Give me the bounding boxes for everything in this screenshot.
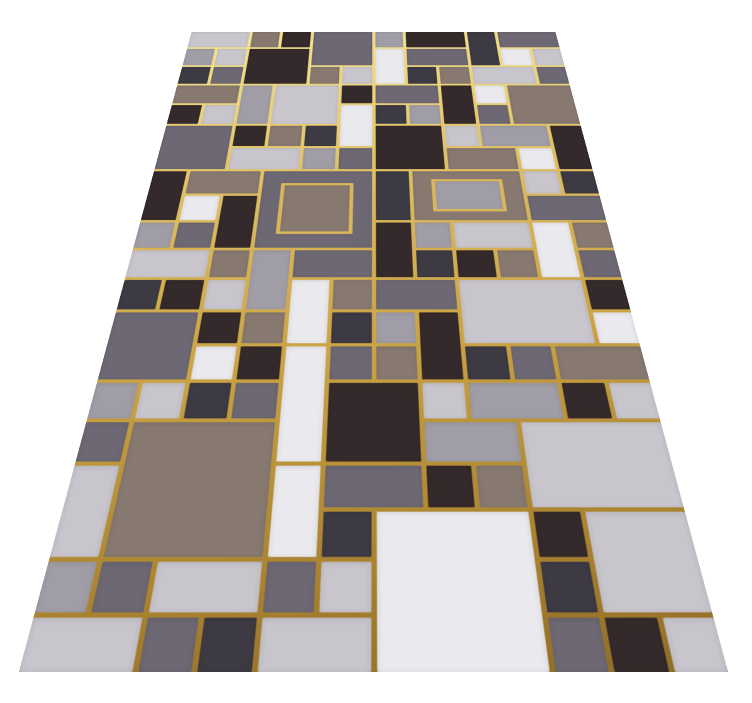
rug-block [98, 312, 198, 379]
rug-block [232, 383, 279, 419]
rug-block [104, 423, 274, 558]
rug-block [138, 617, 199, 671]
rug-block [267, 465, 320, 557]
rug-block [250, 32, 280, 47]
rug-block [236, 85, 273, 124]
rug-block [125, 250, 209, 277]
rug-block [76, 423, 130, 462]
rug-block [469, 383, 564, 419]
rug-block [555, 346, 649, 379]
rug-block [375, 126, 445, 169]
rug-block [203, 280, 246, 309]
rug-block [242, 312, 285, 343]
rug-block [340, 105, 372, 146]
rug-block [214, 196, 258, 248]
rug-block [578, 250, 622, 277]
rug-block [186, 171, 261, 193]
rug-block [201, 105, 236, 124]
rug-block [155, 126, 233, 169]
rug-block [332, 280, 371, 309]
rug-block [178, 67, 212, 84]
rug-block [497, 32, 559, 47]
rug-block [257, 617, 370, 671]
rug-block [477, 105, 511, 124]
rug-block [415, 222, 453, 247]
rug-block [521, 423, 684, 508]
rug-block [174, 222, 215, 247]
rug-block [562, 383, 612, 419]
rug-block [141, 171, 187, 220]
rug-block [445, 126, 479, 146]
rug-block [456, 250, 496, 277]
rug-block-inset [276, 183, 353, 233]
rug-block [500, 49, 532, 65]
rug-block [519, 148, 556, 169]
rug-block [409, 105, 441, 124]
rug-block [167, 105, 203, 124]
rug-block [92, 562, 152, 612]
rug-block [523, 171, 561, 193]
rug-block [187, 32, 249, 47]
rug-block [407, 67, 437, 84]
rug-block [263, 562, 317, 612]
rug-block [376, 512, 549, 672]
rug-block [215, 49, 247, 65]
rug-block [472, 67, 537, 84]
rug-block [376, 280, 458, 309]
rug-block [211, 67, 244, 84]
rug-block [585, 512, 712, 612]
rug-block [424, 423, 521, 462]
rug-block [309, 67, 339, 84]
rug-block [416, 250, 455, 277]
rug-block [339, 148, 372, 169]
rug-block [180, 196, 220, 220]
rug-block [474, 85, 507, 103]
rug-block [592, 312, 639, 343]
rug-block [375, 105, 406, 124]
rug-block [560, 171, 599, 193]
rug-block [412, 171, 528, 220]
rug-block [341, 85, 372, 103]
rug-block [548, 617, 609, 671]
rug-block [329, 346, 371, 379]
rug-block [536, 67, 570, 84]
rug-block [183, 383, 231, 419]
rug-block [465, 346, 510, 379]
rug-block [302, 148, 336, 169]
rug-block [662, 617, 728, 671]
rug-block [268, 126, 302, 146]
rug-block [198, 617, 257, 671]
rug-block [510, 346, 556, 379]
rug-block [19, 617, 142, 671]
rug-block [342, 67, 372, 84]
rug-block [311, 32, 372, 65]
rug-product-image [0, 0, 752, 703]
rug-block [197, 312, 242, 343]
rug-block [571, 222, 613, 247]
rug-block [605, 617, 669, 671]
rug-block [149, 562, 262, 612]
rug-block [532, 49, 565, 65]
rug-block [406, 32, 466, 47]
rug-block [232, 126, 267, 146]
rug-block [439, 67, 470, 84]
rug-block [507, 85, 580, 124]
rug-block [540, 562, 598, 612]
rug-block [276, 346, 327, 461]
rug-block [406, 49, 468, 65]
rug-block [419, 312, 464, 379]
rug-block [172, 85, 240, 103]
rug-block [271, 85, 339, 124]
rug-block [533, 512, 588, 558]
rug-canvas [19, 32, 728, 672]
rug-block [292, 250, 371, 277]
rug-block [608, 383, 660, 419]
rug-block [133, 222, 175, 247]
rug-block [480, 126, 551, 146]
rug-block [441, 85, 476, 124]
rug-block [497, 250, 538, 277]
rug-block [190, 346, 236, 379]
rug-block-inset [431, 179, 507, 211]
rug-block [324, 465, 423, 507]
rug-block [281, 32, 311, 47]
rug-block [326, 383, 421, 461]
rug-block [467, 32, 500, 65]
rug-block [254, 171, 371, 247]
rug-block [319, 562, 370, 612]
rug-block [331, 312, 371, 343]
rug-block [527, 196, 606, 220]
rug-block [447, 148, 519, 169]
rug-block [476, 465, 527, 507]
rug-block [376, 346, 418, 379]
rug-block [286, 280, 329, 343]
rug-block [35, 562, 98, 612]
rug-block [375, 85, 439, 103]
rug-block [375, 32, 403, 47]
rug-block [585, 280, 630, 309]
rug-block [160, 280, 204, 309]
rug-block [422, 383, 467, 419]
rug-block [376, 312, 416, 343]
rug-block [459, 280, 594, 343]
rug-block [375, 171, 410, 220]
rug-block [135, 383, 185, 419]
rug-block [228, 148, 300, 169]
rug-block [183, 49, 216, 65]
rug-block [426, 465, 475, 507]
rug-block [243, 49, 309, 84]
rug-block [375, 222, 413, 277]
rug-block [209, 250, 250, 277]
rug-block [117, 280, 162, 309]
rug-block [87, 383, 139, 419]
rug-block [246, 250, 290, 309]
rug-block [304, 126, 337, 146]
rug-block [237, 346, 282, 379]
rug-block [549, 126, 592, 169]
rug-block [322, 512, 371, 558]
rug-block [375, 49, 405, 84]
rug-block [454, 222, 533, 247]
